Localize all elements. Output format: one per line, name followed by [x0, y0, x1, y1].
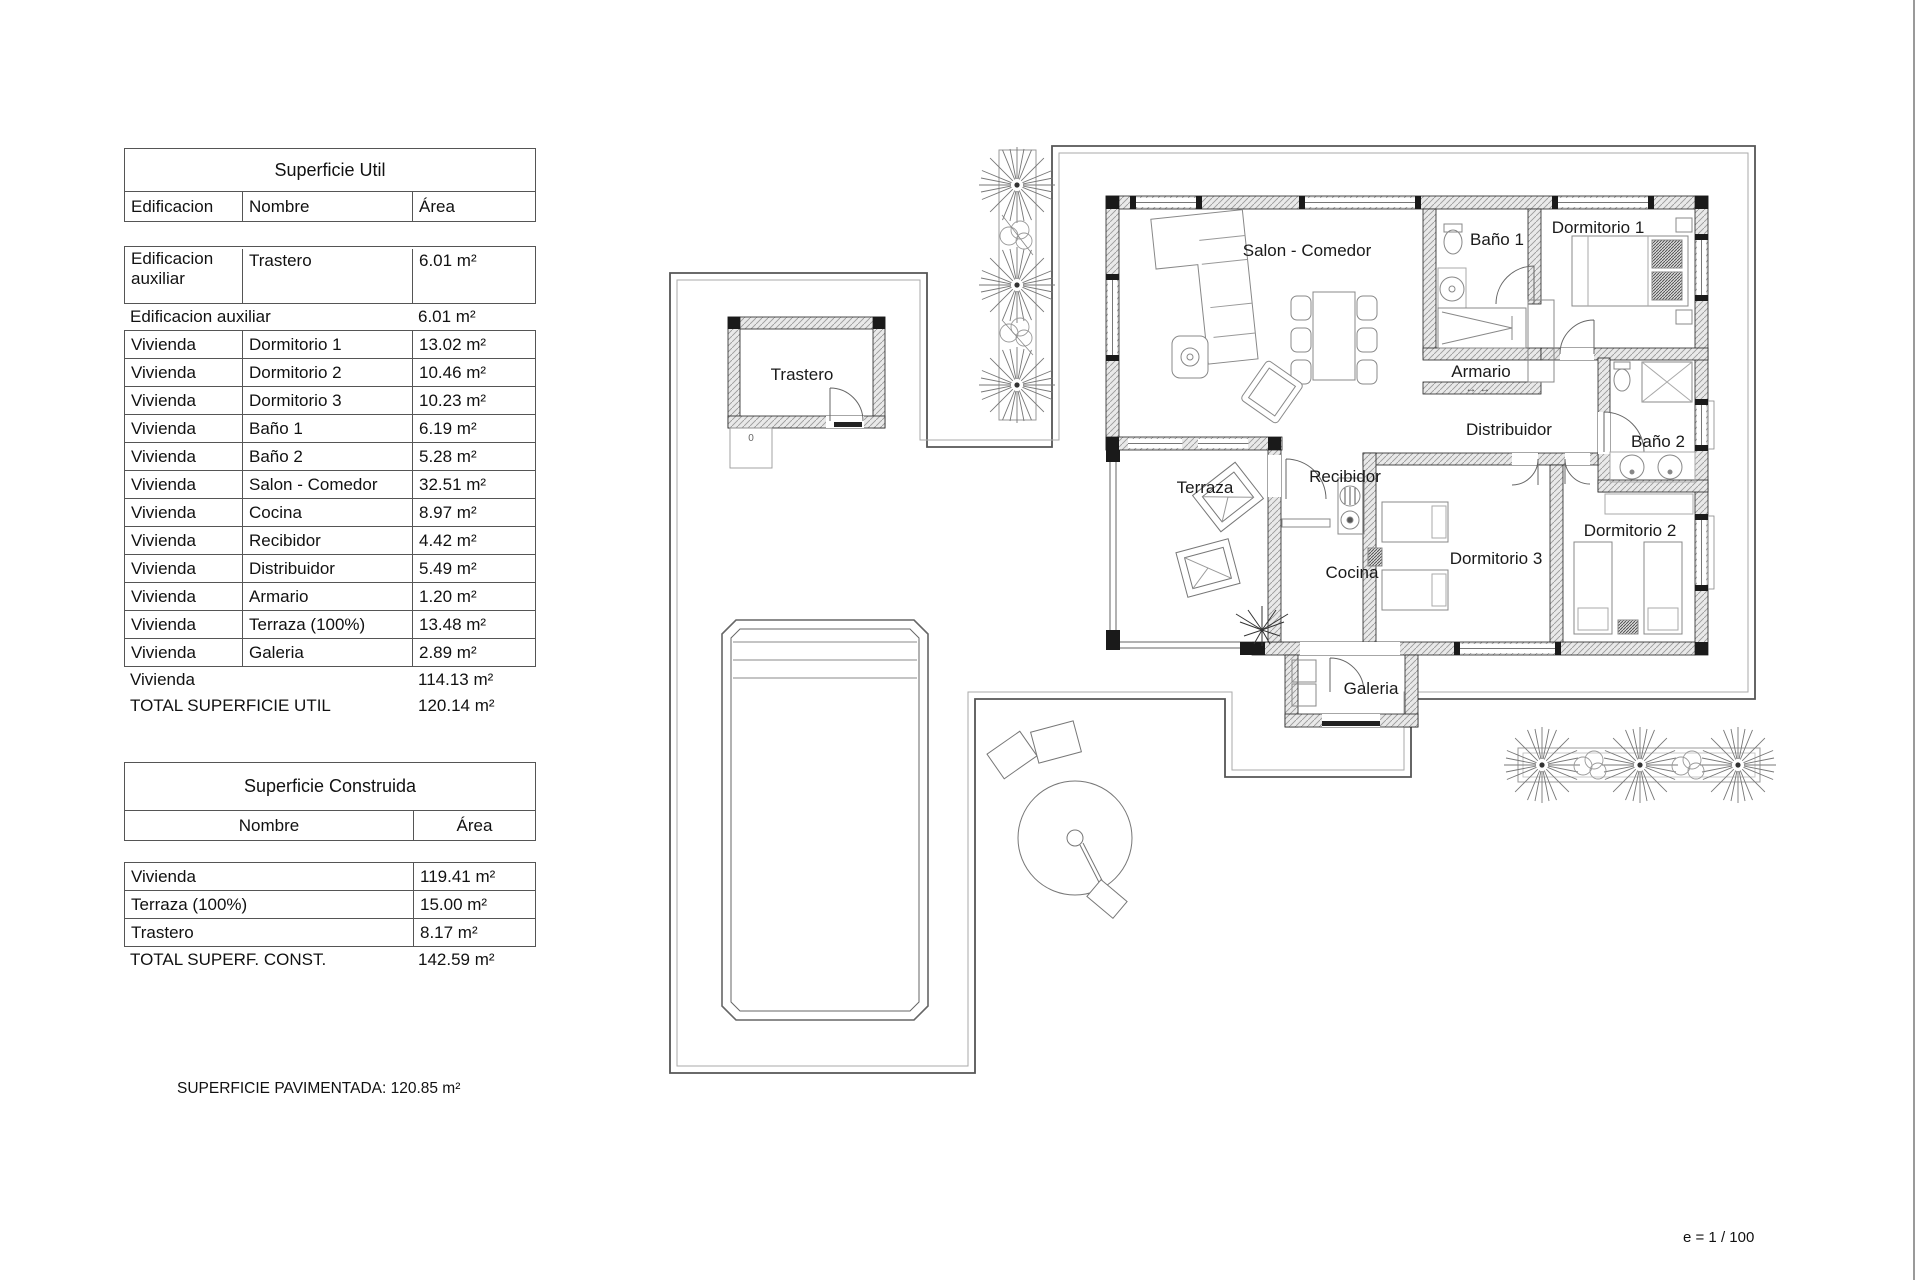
construida-header-area: Área [413, 811, 535, 840]
paved-surface-note: SUPERFICIE PAVIMENTADA: 120.85 m² [177, 1080, 460, 1098]
table-row: Trastero 8.17 m² [125, 918, 535, 946]
vivienda-total-row: Vivienda 114.13 m² [124, 667, 536, 693]
table-row: Vivienda Distribuidor 5.49 m² [125, 554, 535, 582]
label-dorm1: Dormitorio 1 [1552, 218, 1645, 237]
bed-dorm2-b [1644, 542, 1682, 634]
util-header-area: Área [412, 192, 535, 221]
table-row: Terraza (100%) 15.00 m² [125, 890, 535, 918]
label-bano1: Baño 1 [1470, 230, 1524, 249]
table-row: Vivienda Armario 1.20 m² [125, 582, 535, 610]
bed-dorm3-a [1382, 502, 1448, 542]
table-row: Vivienda Baño 1 6.19 m² [125, 414, 535, 442]
label-terraza: Terraza [1177, 478, 1234, 497]
construida-total-row: TOTAL SUPERF. CONST. 142.59 m² [124, 947, 536, 973]
util-table-title: Superficie Util [125, 149, 535, 191]
label-dorm2: Dormitorio 2 [1584, 521, 1677, 540]
side-table [1172, 336, 1208, 378]
table-row: Vivienda 119.41 m² [125, 863, 535, 890]
parasol-set [987, 721, 1132, 919]
label-bano2: Baño 2 [1631, 432, 1685, 451]
bed-dorm3-b [1382, 570, 1448, 610]
util-header-building: Edificacion [125, 197, 242, 217]
label-galeria: Galeria [1344, 679, 1399, 698]
superficie-util-table: Superficie Util Edificacion Nombre Área … [124, 148, 536, 719]
scale-note: e = 1 / 100 [1683, 1229, 1754, 1246]
table-row: Vivienda Dormitorio 2 10.46 m² [125, 358, 535, 386]
table-row: Vivienda Salon - Comedor 32.51 m² [125, 470, 535, 498]
trastero-building [728, 317, 885, 468]
tree-strip-vertical [979, 147, 1055, 423]
aux-total-row: Edificacion auxiliar 6.01 m² [124, 304, 536, 330]
sheet-edge-line [1913, 0, 1915, 1280]
pool [722, 620, 928, 1020]
label-armario-arrows: ↔ ↔ [1465, 383, 1490, 395]
dining-table [1313, 292, 1355, 380]
drawing-sheet: Trastero Terraza Salon - Comedor Baño 1 … [0, 0, 1920, 1280]
util-grand-total-row: TOTAL SUPERFICIE UTIL 120.14 m² [124, 693, 536, 719]
table-row: Edificacion auxiliar Trastero 6.01 m² [125, 247, 535, 303]
wardrobe-dorm1 [1528, 300, 1554, 382]
construida-table-title: Superficie Construida [125, 763, 535, 810]
label-recibidor: Recibidor [1309, 467, 1381, 486]
label-cocina: Cocina [1326, 563, 1379, 582]
label-dorm3: Dormitorio 3 [1450, 549, 1543, 568]
table-row: Vivienda Galeria 2.89 m² [125, 638, 535, 666]
label-distribuidor: Distribuidor [1466, 420, 1552, 439]
label-trastero: Trastero [771, 365, 834, 384]
util-header-name: Nombre [242, 192, 412, 221]
superficie-construida-table: Superficie Construida Nombre Área Vivien… [124, 762, 536, 973]
table-row: Vivienda Baño 2 5.28 m² [125, 442, 535, 470]
table-row: Vivienda Cocina 8.97 m² [125, 498, 535, 526]
label-armario: Armario [1451, 362, 1511, 381]
construida-header-name: Nombre [125, 816, 413, 836]
table-row: Vivienda Terraza (100%) 13.48 m² [125, 610, 535, 638]
label-pad-zero: 0 [748, 433, 754, 444]
hedge-row [1504, 727, 1776, 803]
bed-dorm2-a [1574, 542, 1612, 634]
table-row: Vivienda Dormitorio 3 10.23 m² [125, 386, 535, 414]
label-salon: Salon - Comedor [1243, 241, 1372, 260]
table-row: Vivienda Recibidor 4.42 m² [125, 526, 535, 554]
table-row: Vivienda Dormitorio 1 13.02 m² [125, 331, 535, 358]
